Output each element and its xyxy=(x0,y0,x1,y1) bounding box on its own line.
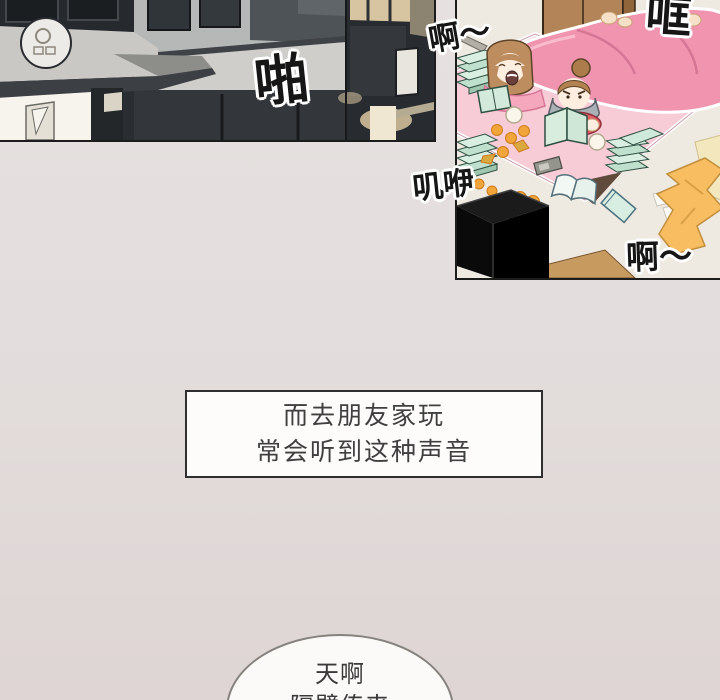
foot-peeking xyxy=(618,17,632,27)
narration-line-2: 常会听到这种声音 xyxy=(256,434,472,470)
sfx-clatter: 哐 xyxy=(644,0,694,48)
black-speaker-box xyxy=(457,190,549,278)
right-building xyxy=(338,0,434,140)
street-night-panel xyxy=(0,0,436,142)
narration-box: 而去朋友家玩 常会听到这种声音 xyxy=(185,390,543,478)
sfx-ah-bottom: 啊～ xyxy=(625,229,693,279)
sfx-squeak: 叽咿 xyxy=(410,157,476,208)
bubble-line-1: 天啊 xyxy=(228,658,452,690)
street-night-art xyxy=(0,0,434,140)
sfx-slam: 啪 xyxy=(250,33,312,117)
narration-line-1: 而去朋友家玩 xyxy=(283,398,445,434)
speech-bubble: 天啊 隔壁传来 xyxy=(226,634,454,700)
foot-peeking xyxy=(601,12,617,24)
comic-page[interactable]: 啪 啊～ 哐 叽咿 啊～ 而去朋友家玩 常会听到这种声音 天啊 隔壁传来 xyxy=(0,0,720,700)
bubble-line-2: 隔壁传来 xyxy=(228,690,452,700)
